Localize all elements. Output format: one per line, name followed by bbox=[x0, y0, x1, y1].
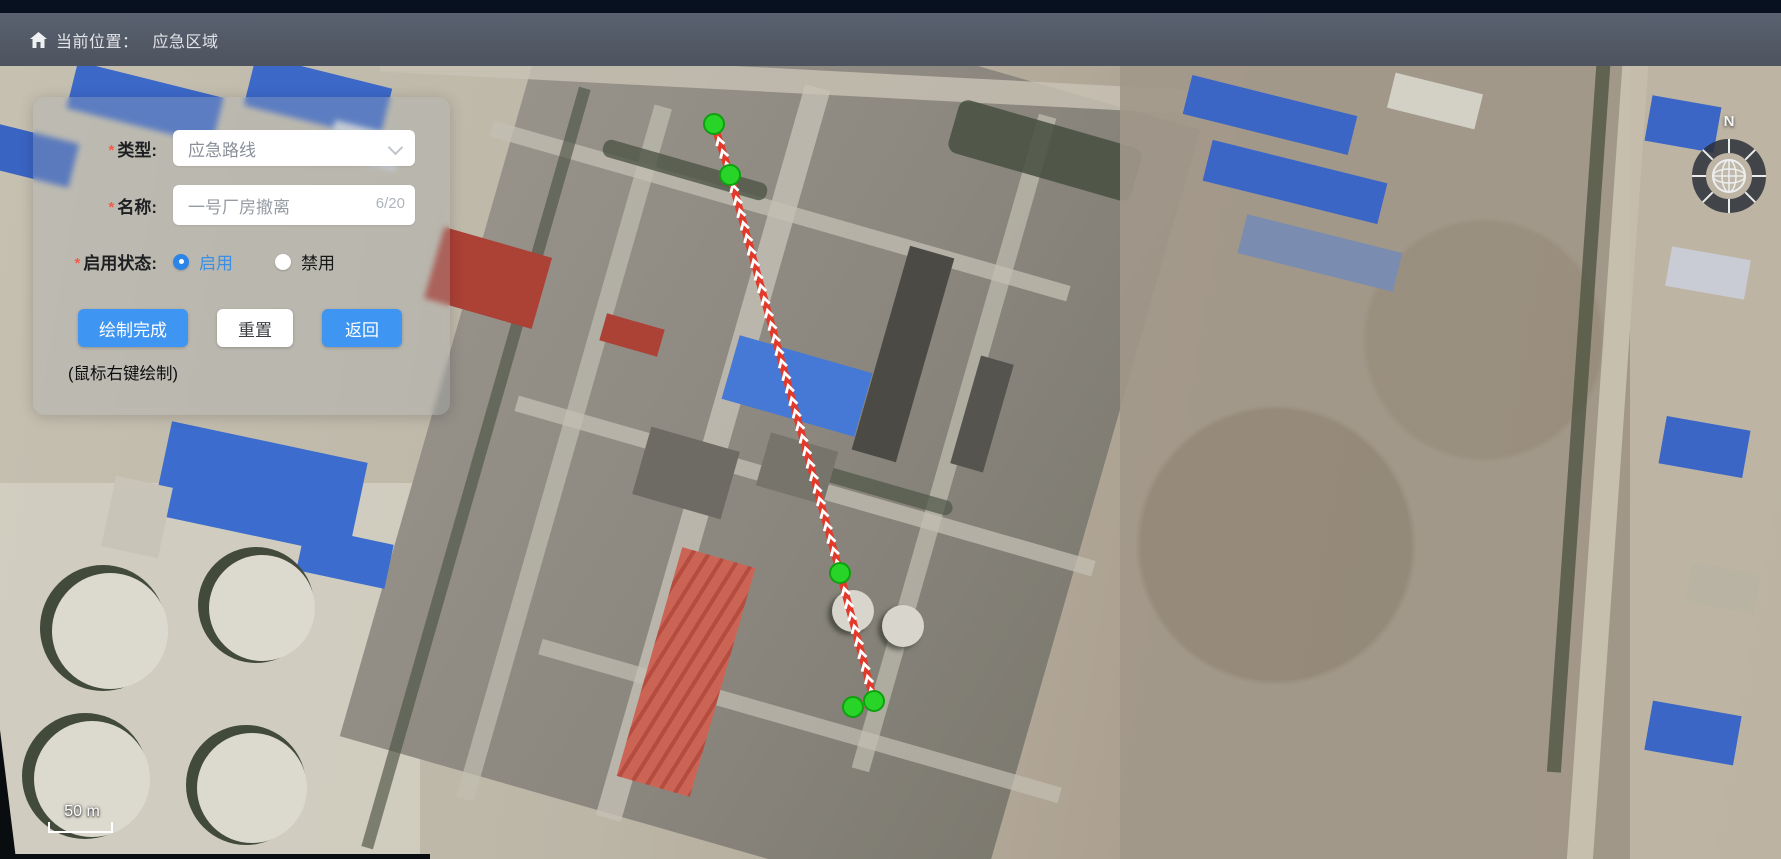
compass-north-label: N bbox=[1683, 114, 1775, 130]
map-scale-bar: 50 m bbox=[46, 804, 118, 838]
type-label: *类型: bbox=[33, 136, 157, 161]
reset-button[interactable]: 重置 bbox=[217, 309, 293, 347]
name-row: *名称: 6/20 bbox=[33, 185, 415, 225]
status-row: *启用状态: 启用 禁用 bbox=[33, 249, 335, 274]
home-icon[interactable] bbox=[30, 32, 47, 48]
breadcrumb-prefix: 当前位置： bbox=[56, 28, 139, 52]
map-tank bbox=[832, 590, 874, 632]
status-label: *启用状态: bbox=[33, 249, 157, 274]
name-label: *名称: bbox=[33, 193, 157, 218]
finish-draw-button[interactable]: 绘制完成 bbox=[78, 309, 188, 347]
required-marker: * bbox=[108, 199, 114, 216]
radio-disable[interactable]: 禁用 bbox=[275, 249, 335, 274]
type-select[interactable]: 应急路线 bbox=[173, 130, 415, 166]
name-field-wrap: 6/20 bbox=[173, 185, 415, 225]
draw-hint: (鼠标右键绘制) bbox=[68, 360, 178, 384]
breadcrumb-bar: 当前位置： 应急区域 bbox=[0, 13, 1781, 66]
map-tank bbox=[209, 555, 315, 661]
scale-label: 50 m bbox=[46, 804, 118, 820]
compass-icon bbox=[1683, 130, 1775, 222]
radio-enable[interactable]: 启用 bbox=[173, 249, 233, 274]
window-titlebar bbox=[0, 0, 1781, 13]
map-tank bbox=[882, 605, 924, 647]
map-tank bbox=[52, 573, 168, 689]
radio-enable-label: 启用 bbox=[199, 249, 233, 274]
status-radio-group: 启用 禁用 bbox=[173, 249, 335, 274]
scale-bracket bbox=[46, 820, 118, 834]
radio-dot-icon bbox=[173, 254, 189, 270]
chevron-down-icon bbox=[388, 140, 404, 156]
route-edit-panel: *类型: 应急路线 *名称: 6/20 *启用状态: 启用 禁用 绘制完成 重置… bbox=[33, 97, 450, 415]
radio-dot-icon bbox=[275, 254, 291, 270]
required-marker: * bbox=[108, 142, 114, 159]
type-select-value: 应急路线 bbox=[188, 136, 256, 161]
char-counter: 6/20 bbox=[376, 195, 405, 212]
radio-disable-label: 禁用 bbox=[301, 249, 335, 274]
required-marker: * bbox=[74, 255, 80, 272]
back-button[interactable]: 返回 bbox=[322, 309, 402, 347]
type-row: *类型: 应急路线 bbox=[33, 130, 415, 166]
map-edge bbox=[0, 854, 430, 859]
map-tank bbox=[197, 733, 307, 843]
compass-widget[interactable]: N bbox=[1683, 114, 1775, 226]
breadcrumb-current[interactable]: 应急区域 bbox=[153, 28, 219, 52]
